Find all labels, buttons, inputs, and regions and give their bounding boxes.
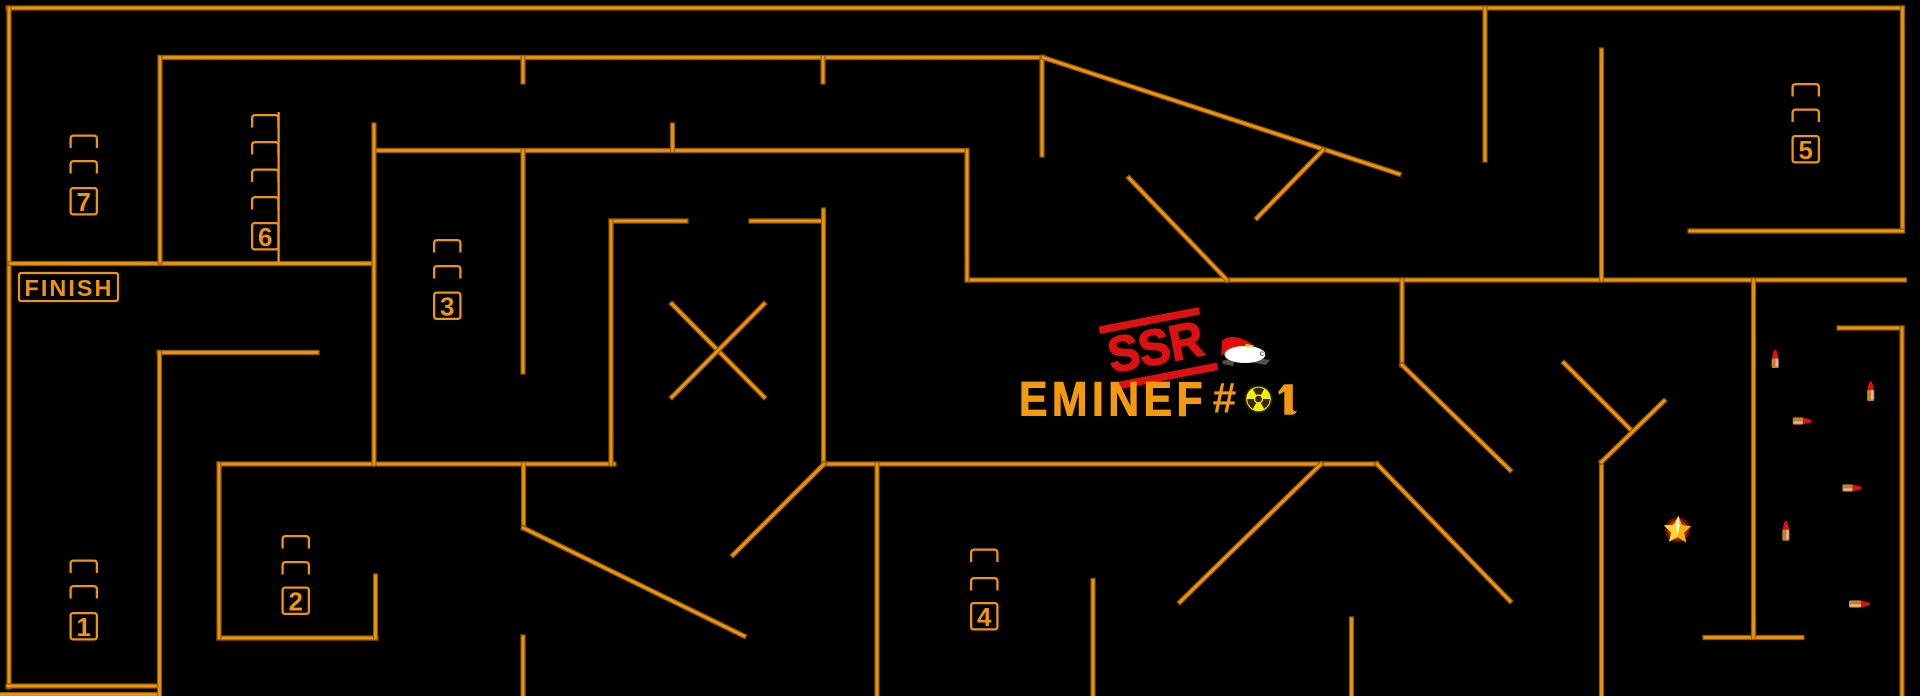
svg-text:6: 6 [258,222,272,252]
svg-text:cc: cc [1260,350,1270,359]
svg-text:FINISH: FINISH [25,275,114,301]
svg-text:7: 7 [77,187,91,217]
svg-text:5: 5 [1799,135,1813,165]
svg-text:1: 1 [77,612,91,642]
svg-text:3: 3 [440,291,454,321]
svg-text:#: # [1213,375,1237,423]
svg-text:2: 2 [289,586,303,616]
svg-text:4: 4 [977,602,992,632]
svg-text:EMINEF: EMINEF [1019,373,1207,427]
